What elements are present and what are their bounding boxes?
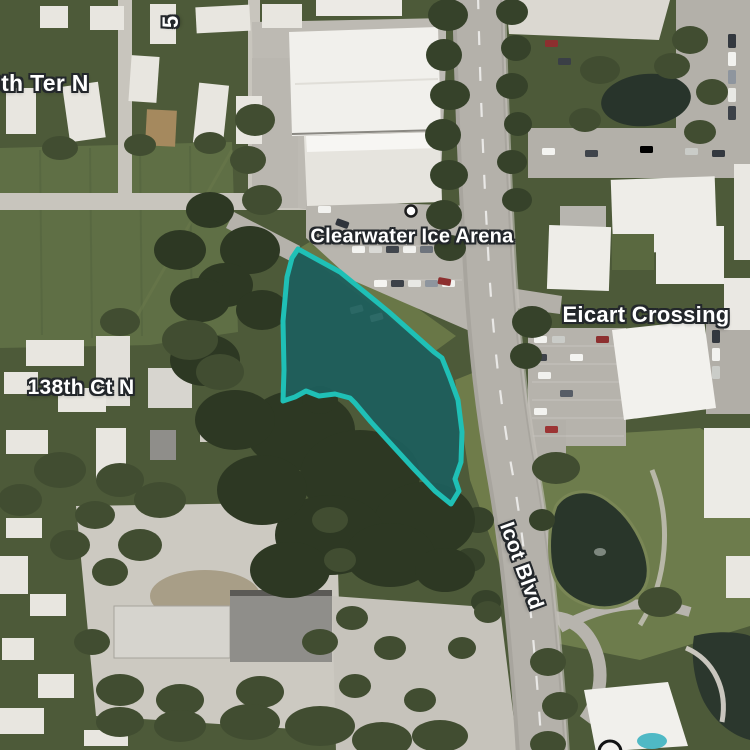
map-viewport[interactable]: 0th Ter N 5 Clearwater Ice Arena Eicart … bbox=[0, 0, 750, 750]
street-label-138th-ct-n: 138th Ct N bbox=[28, 376, 135, 400]
satellite-imagery[interactable] bbox=[0, 0, 750, 750]
place-label-eicart-crossing: Eicart Crossing bbox=[562, 302, 729, 328]
bottom-partial-marker[interactable] bbox=[599, 741, 621, 750]
street-label-vertical-5: 5 bbox=[158, 15, 184, 28]
street-label-ter-n: 0th Ter N bbox=[0, 70, 89, 97]
poi-label-ice-arena[interactable]: Clearwater Ice Arena bbox=[310, 226, 513, 249]
ice-arena-marker[interactable] bbox=[406, 206, 417, 217]
